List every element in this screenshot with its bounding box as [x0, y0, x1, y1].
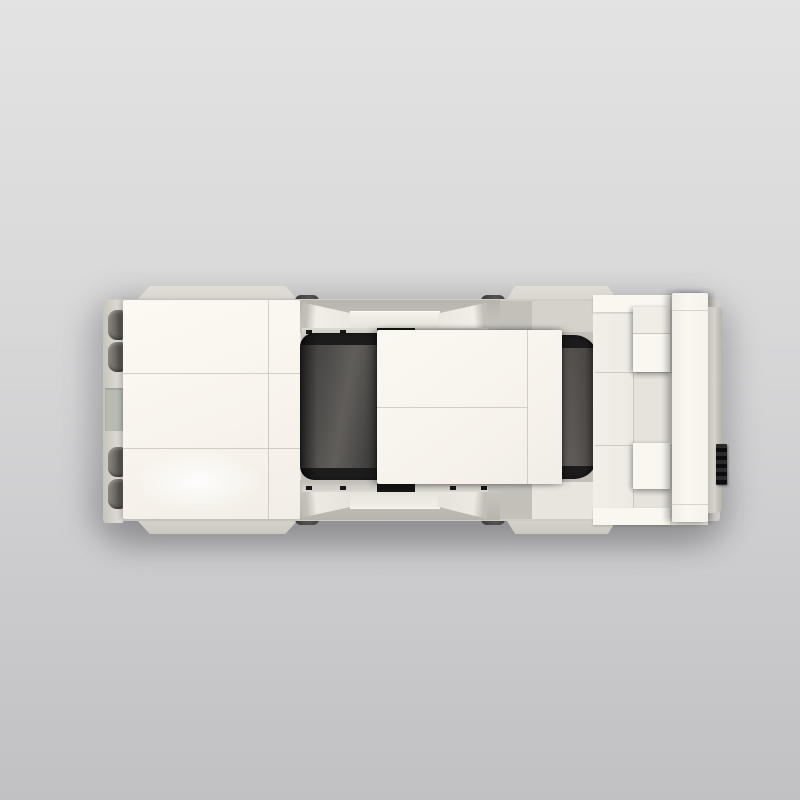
rail-clip: [450, 486, 456, 490]
wing-seam: [672, 310, 708, 311]
wing-seam: [672, 504, 708, 505]
hood-seam: [123, 373, 300, 374]
pillar-patch-bottom: [532, 482, 595, 519]
lamp-piece-bottom-1: [108, 447, 123, 477]
studio-background: [0, 0, 800, 800]
roof-seam: [377, 407, 527, 408]
rail-clip: [481, 486, 487, 490]
roof-seam: [527, 330, 528, 484]
side-skirt-bottom: [350, 491, 440, 509]
rail-clip: [306, 486, 312, 490]
lego-car-top-view: [100, 283, 722, 537]
pillar-patch-top: [532, 301, 595, 332]
hood-seam: [268, 300, 269, 519]
lamp-piece-top-2: [108, 342, 123, 372]
deck-brick-bottom: [633, 443, 670, 489]
deck-brick-top: [633, 307, 670, 372]
windshield-glass: [300, 333, 378, 480]
deck-left-column: [593, 295, 633, 525]
deck-strip-bottom: [593, 508, 670, 525]
hood-highlight: [134, 451, 264, 513]
hood-seam: [123, 448, 300, 449]
rear-wing: [672, 293, 708, 522]
lamp-piece-bottom-2: [108, 479, 123, 509]
exhaust-grille: [716, 444, 727, 485]
side-skirt-top: [350, 311, 440, 329]
lamp-piece-top-1: [108, 310, 123, 340]
license-plate-holder: [105, 388, 123, 431]
rail-clip: [340, 486, 346, 490]
